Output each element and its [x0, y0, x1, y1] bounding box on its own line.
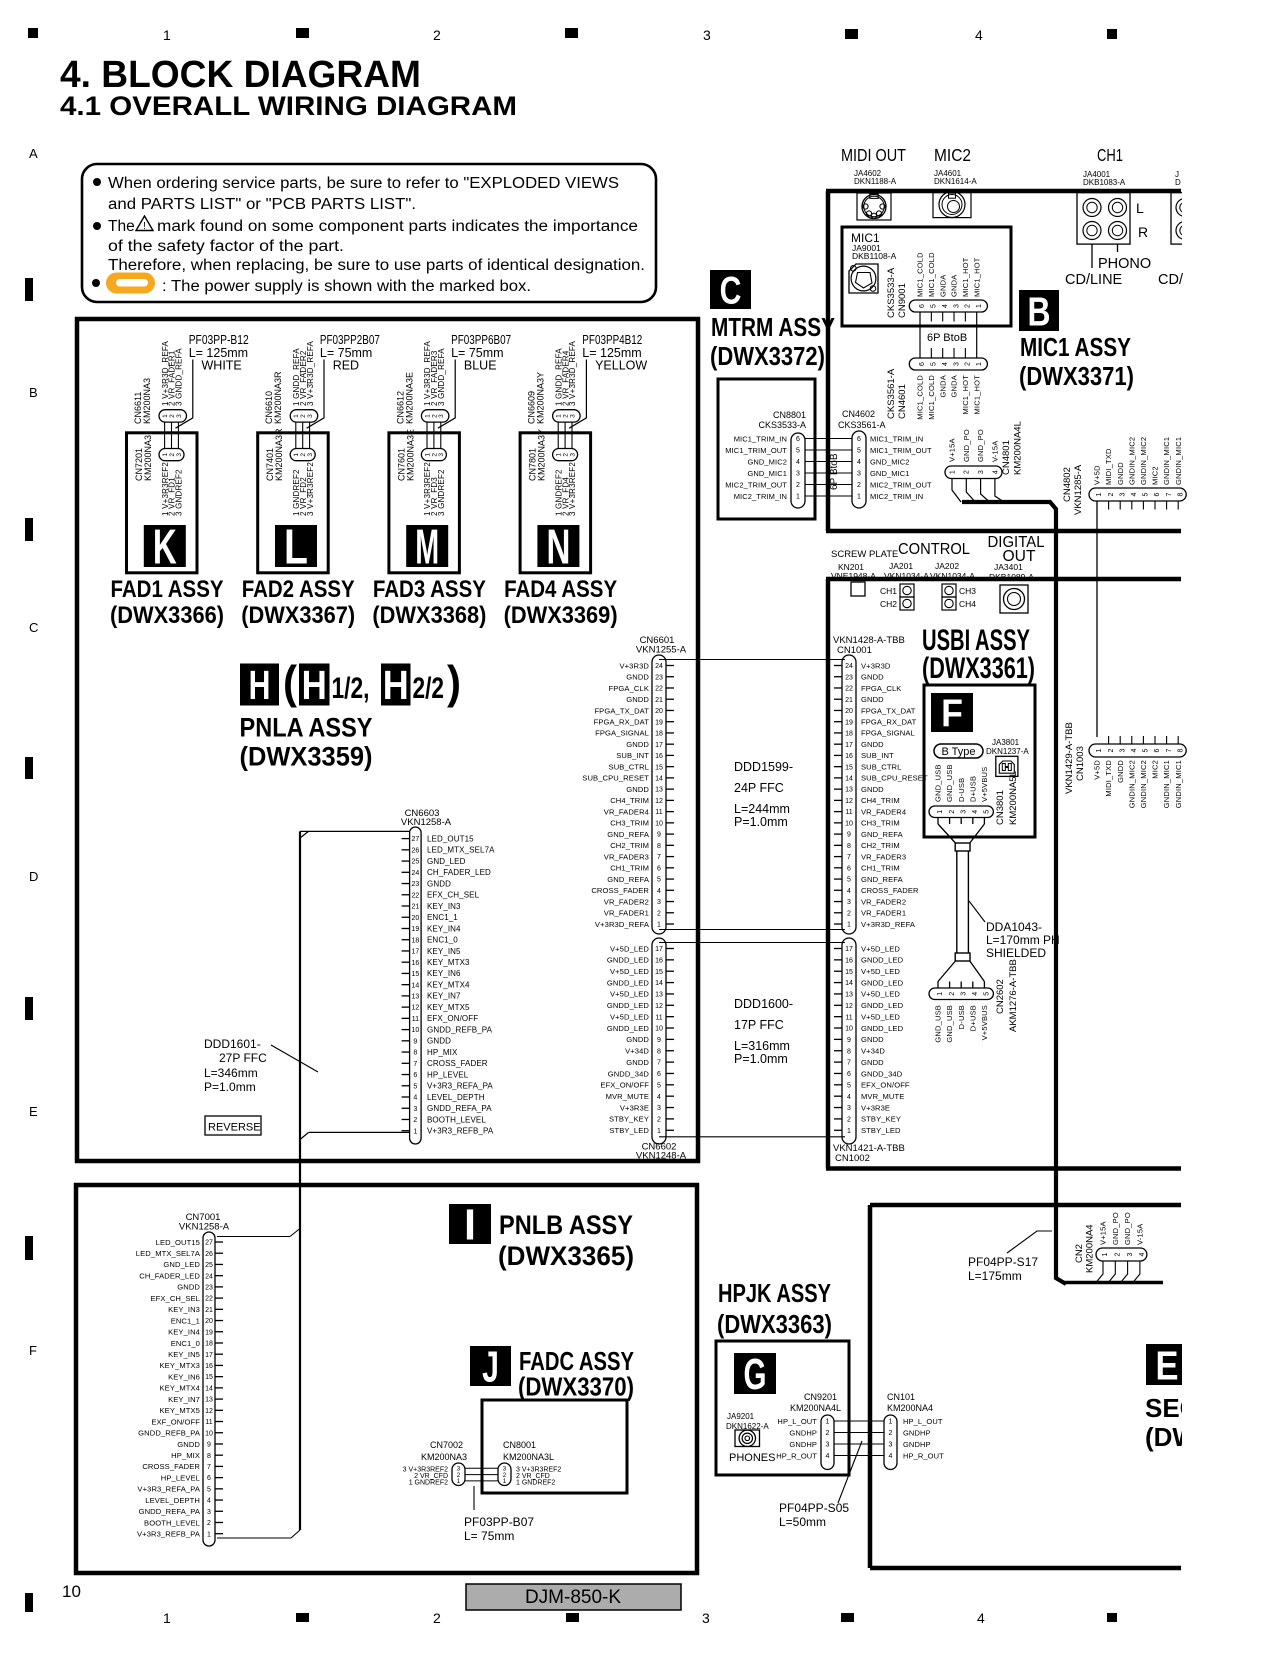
svg-text:3: 3	[657, 899, 661, 906]
svg-text:KM200NA3: KM200NA3	[143, 435, 153, 481]
svg-text:1: 1	[1096, 492, 1103, 496]
svg-text:1: 1	[657, 1128, 661, 1135]
svg-text:10: 10	[411, 1027, 419, 1034]
svg-text:GNDD_34D: GNDD_34D	[608, 1069, 650, 1078]
svg-text:2: 2	[965, 362, 972, 366]
svg-text:1: 1	[207, 1531, 211, 1538]
svg-text:N: N	[546, 521, 570, 575]
svg-text:VKN1255-A: VKN1255-A	[636, 645, 687, 656]
svg-text:L: L	[1136, 200, 1144, 216]
svg-text:1: 1	[857, 494, 861, 501]
svg-text:CROSS_FADER: CROSS_FADER	[427, 1059, 488, 1068]
svg-text:1: 1	[1096, 748, 1103, 752]
svg-text:(DW: (DW	[1145, 1422, 1197, 1452]
svg-text:CH_FADER_LED: CH_FADER_LED	[427, 868, 491, 877]
svg-text:3: 3	[953, 362, 960, 366]
svg-text:GND_LED: GND_LED	[163, 1260, 200, 1269]
svg-text:BOOTH_LEVEL: BOOTH_LEVEL	[144, 1518, 200, 1527]
svg-text:CH3_TRIM: CH3_TRIM	[861, 819, 900, 828]
svg-text:GNDIN_MIC1: GNDIN_MIC1	[1162, 760, 1171, 808]
svg-text:11: 11	[412, 1016, 419, 1023]
svg-text:MIC2: MIC2	[1151, 760, 1160, 779]
svg-text:(DWX3361): (DWX3361)	[922, 652, 1035, 685]
svg-text:5: 5	[207, 1486, 211, 1493]
svg-text:V+5D_LED: V+5D_LED	[610, 967, 649, 976]
svg-text:5: 5	[796, 448, 800, 455]
svg-text:CH4_TRIM: CH4_TRIM	[610, 796, 649, 805]
svg-text:1 GNDREF2: 1 GNDREF2	[516, 1480, 555, 1487]
svg-text:KEY_IN4: KEY_IN4	[168, 1328, 200, 1337]
svg-text:GNDIN_MIC1: GNDIN_MIC1	[1174, 437, 1183, 485]
svg-text:V+5D_LED: V+5D_LED	[610, 944, 649, 953]
svg-text:FAD3 ASSY: FAD3 ASSY	[373, 576, 486, 603]
svg-text:MIC2_TRIM_OUT: MIC2_TRIM_OUT	[725, 480, 787, 489]
svg-text:4: 4	[857, 459, 861, 466]
svg-text:STBY_LED: STBY_LED	[609, 1126, 649, 1135]
svg-text:SUB_CPU_RESET: SUB_CPU_RESET	[861, 774, 928, 783]
svg-text:27: 27	[205, 1240, 213, 1247]
svg-text:3: 3	[826, 1442, 830, 1449]
svg-text:CN3801: CN3801	[995, 790, 1006, 825]
svg-text:BOOTH_LEVEL: BOOTH_LEVEL	[427, 1115, 486, 1124]
svg-text:1: 1	[847, 922, 851, 929]
svg-text:GNDD: GNDD	[861, 695, 884, 704]
svg-text:GNDD: GNDD	[1116, 462, 1125, 485]
svg-text:RED: RED	[333, 359, 359, 373]
svg-text:V+5D_LED: V+5D_LED	[861, 944, 900, 953]
svg-text:GNDD_LED: GNDD_LED	[861, 1024, 904, 1033]
svg-text:PHONES: PHONES	[729, 1452, 775, 1464]
svg-text:of the safety factor of the pa: of the safety factor of the part.	[108, 238, 344, 255]
svg-text:3 V+3R3REF2: 3 V+3R3REF2	[306, 462, 315, 516]
svg-text:3: 3	[657, 1105, 661, 1112]
svg-text:1: 1	[163, 1610, 171, 1626]
svg-text:V+3R3_REFA_PA: V+3R3_REFA_PA	[137, 1485, 200, 1494]
svg-text:E: E	[1156, 1342, 1179, 1388]
svg-text:L=244mm: L=244mm	[734, 802, 790, 816]
svg-text:F: F	[29, 1343, 37, 1358]
svg-text:HP_MIX: HP_MIX	[171, 1451, 200, 1460]
svg-text:12: 12	[845, 798, 853, 805]
svg-text:1: 1	[976, 362, 983, 366]
svg-text:7: 7	[847, 1060, 851, 1067]
svg-text:V+5VBUS: V+5VBUS	[980, 767, 989, 802]
svg-text:20: 20	[655, 708, 663, 715]
svg-text:CH2_TRIM: CH2_TRIM	[861, 841, 900, 850]
svg-text:8: 8	[1177, 492, 1184, 496]
svg-text:GND_USB: GND_USB	[945, 764, 954, 802]
svg-text:VKN1258-A: VKN1258-A	[401, 817, 452, 828]
svg-text:KEY_MTX5: KEY_MTX5	[160, 1406, 200, 1415]
svg-text:6: 6	[1154, 492, 1161, 496]
svg-text:KM200NA3E: KM200NA3E	[404, 372, 414, 424]
svg-text:(DWX3371): (DWX3371)	[1019, 361, 1134, 391]
svg-text:3 V+3R3D_REFA: 3 V+3R3D_REFA	[306, 340, 315, 406]
svg-text:18: 18	[411, 937, 419, 944]
svg-text:6: 6	[796, 436, 800, 443]
svg-text:22: 22	[411, 892, 419, 899]
svg-text:12: 12	[655, 1003, 663, 1010]
svg-text:CN4801: CN4801	[1001, 440, 1012, 475]
svg-text:CN1003: CN1003	[1075, 746, 1086, 781]
svg-text:7: 7	[847, 854, 851, 861]
svg-text:KM200NA3R: KM200NA3R	[274, 428, 284, 481]
svg-text:V+5D_LED: V+5D_LED	[610, 1012, 649, 1021]
svg-text:GNDD: GNDD	[177, 1440, 200, 1449]
svg-text:LED_MTX_SEL7A: LED_MTX_SEL7A	[136, 1249, 201, 1258]
svg-text:LED_OUT15: LED_OUT15	[427, 834, 474, 843]
svg-text:C: C	[720, 270, 742, 313]
svg-text:V+3R3_REFB_PA: V+3R3_REFB_PA	[427, 1127, 494, 1136]
svg-text:CD/: CD/	[1158, 272, 1184, 288]
svg-text:1: 1	[657, 922, 661, 929]
svg-text:GNDA: GNDA	[950, 375, 959, 397]
svg-text:20: 20	[205, 1318, 213, 1325]
svg-text:(DWX3372): (DWX3372)	[710, 341, 825, 371]
svg-text:MIC1_COLD: MIC1_COLD	[916, 375, 925, 420]
svg-text:GNDD: GNDD	[861, 785, 884, 794]
svg-text:FPGA_CLK: FPGA_CLK	[609, 684, 649, 693]
svg-text:3: 3	[307, 414, 314, 418]
svg-text:KEY_IN5: KEY_IN5	[427, 947, 461, 956]
svg-text:GNDD: GNDD	[861, 1058, 884, 1067]
svg-text:17: 17	[845, 742, 853, 749]
svg-text:2: 2	[796, 482, 800, 489]
svg-text:24: 24	[205, 1273, 213, 1280]
svg-text:H: H	[249, 662, 271, 708]
svg-text:VKN1248-A: VKN1248-A	[636, 1151, 687, 1162]
svg-text:mark found on some component p: mark found on some component parts indic…	[157, 218, 638, 235]
svg-text:GNDHP: GNDHP	[789, 1440, 817, 1449]
svg-text:16: 16	[411, 960, 419, 967]
svg-text:15: 15	[845, 969, 853, 976]
svg-text:4: 4	[413, 1095, 417, 1102]
svg-text:CN9001: CN9001	[897, 283, 908, 318]
svg-text:3: 3	[438, 414, 445, 418]
svg-text:GNDD: GNDD	[861, 1035, 884, 1044]
svg-text:4: 4	[847, 888, 851, 895]
svg-text:16: 16	[655, 957, 663, 964]
svg-text:CONTROL: CONTROL	[898, 541, 970, 558]
svg-text:4: 4	[207, 1498, 211, 1505]
svg-text:5: 5	[984, 992, 991, 996]
svg-text:MIDI OUT: MIDI OUT	[841, 145, 906, 165]
svg-text:L=316mm: L=316mm	[734, 1039, 790, 1053]
svg-text:MTRM ASSY: MTRM ASSY	[711, 312, 835, 342]
svg-text:2: 2	[1115, 1252, 1122, 1256]
svg-text:CROSS_FADER: CROSS_FADER	[591, 886, 649, 895]
svg-text:(DWX3368): (DWX3368)	[372, 602, 486, 629]
svg-text:AKM1276-A-TBB: AKM1276-A-TBB	[1008, 959, 1019, 1032]
svg-text:2: 2	[826, 1430, 830, 1437]
svg-text:DDD1599-: DDD1599-	[734, 760, 793, 774]
svg-text:GNDD_REFB_PA: GNDD_REFB_PA	[427, 1025, 493, 1034]
svg-text:11: 11	[655, 1014, 662, 1021]
svg-text:GNDD: GNDD	[626, 673, 649, 682]
svg-text:6: 6	[847, 1071, 851, 1078]
svg-text:7: 7	[207, 1464, 211, 1471]
svg-text:FAD2 ASSY: FAD2 ASSY	[242, 576, 355, 603]
svg-text:PNLA ASSY: PNLA ASSY	[240, 713, 373, 743]
svg-text:6: 6	[857, 436, 861, 443]
svg-text:2: 2	[857, 482, 861, 489]
svg-text:17: 17	[845, 946, 853, 953]
svg-text:PHONO: PHONO	[1098, 256, 1151, 272]
svg-text:GND_PO: GND_PO	[962, 429, 971, 462]
svg-text:14: 14	[845, 776, 853, 783]
svg-text:HP_L_OUT: HP_L_OUT	[903, 1417, 943, 1426]
svg-text:MIC2: MIC2	[1151, 466, 1160, 485]
svg-text:SEC: SEC	[1145, 1393, 1199, 1423]
svg-text:A: A	[29, 146, 38, 161]
svg-text:KM200NA4: KM200NA4	[887, 1403, 933, 1413]
svg-text:2: 2	[889, 1430, 893, 1437]
svg-text:GNDA: GNDA	[950, 275, 959, 297]
svg-text:4: 4	[992, 470, 999, 474]
svg-text:(: (	[283, 656, 298, 708]
svg-text:FPGA_TX_DAT: FPGA_TX_DAT	[594, 706, 649, 715]
svg-text:14: 14	[845, 980, 853, 987]
svg-text:17: 17	[411, 949, 419, 956]
svg-text:3: 3	[176, 414, 183, 418]
svg-text:3 V+3R3D_REFA: 3 V+3R3D_REFA	[568, 340, 577, 406]
svg-text:26: 26	[411, 847, 419, 854]
svg-text:1: 1	[457, 1478, 461, 1485]
svg-text:KM200NA3: KM200NA3	[421, 1452, 467, 1462]
svg-text:16: 16	[205, 1363, 213, 1370]
svg-text:H: H	[302, 662, 327, 708]
svg-text:JA3401: JA3401	[994, 562, 1023, 572]
svg-text:3: 3	[307, 453, 314, 457]
svg-text:5: 5	[1143, 492, 1150, 496]
svg-text:(DWX3363): (DWX3363)	[717, 1309, 832, 1339]
svg-text:6P BtoB: 6P BtoB	[927, 332, 967, 344]
svg-text:1: 1	[796, 494, 800, 501]
svg-text:HP_R_OUT: HP_R_OUT	[903, 1451, 944, 1460]
svg-text:6: 6	[413, 1072, 417, 1079]
svg-text:GNDIN_MIC1: GNDIN_MIC1	[1162, 437, 1171, 485]
svg-text:H: H	[383, 662, 409, 708]
svg-text:3: 3	[702, 1610, 710, 1626]
svg-text:13: 13	[655, 787, 663, 794]
svg-text:STBY_KEY: STBY_KEY	[861, 1115, 901, 1124]
svg-text:L=170mm PH: L=170mm PH	[986, 933, 1060, 947]
svg-text:GNDD_LED: GNDD_LED	[607, 1001, 650, 1010]
svg-text:3: 3	[889, 1442, 893, 1449]
svg-text:13: 13	[845, 787, 853, 794]
svg-text:GNDD_REFB_PA: GNDD_REFB_PA	[138, 1429, 201, 1438]
svg-text:BLUE: BLUE	[464, 359, 497, 373]
svg-text:8: 8	[657, 843, 661, 850]
svg-text:KM200NA3E: KM200NA3E	[405, 429, 415, 481]
svg-text:V+5D_LED: V+5D_LED	[861, 990, 900, 999]
svg-text:Therefore, when replacing, be: Therefore, when replacing, be sure to us…	[108, 257, 645, 274]
svg-text:FPGA_TX_DAT: FPGA_TX_DAT	[861, 706, 916, 715]
svg-text:19: 19	[205, 1329, 213, 1336]
svg-text:MIC2_TRIM_IN: MIC2_TRIM_IN	[734, 492, 787, 501]
svg-text:When ordering service parts, b: When ordering service parts, be sure to …	[108, 175, 619, 192]
svg-text:CN2602: CN2602	[995, 979, 1006, 1014]
svg-text:DDA1043-: DDA1043-	[986, 920, 1042, 934]
svg-text:2: 2	[433, 1610, 441, 1626]
svg-text:GNDD_REFA_PA: GNDD_REFA_PA	[427, 1104, 492, 1113]
svg-text:18: 18	[205, 1341, 213, 1348]
svg-text:24P FFC: 24P FFC	[734, 781, 784, 795]
svg-text:4: 4	[889, 1453, 893, 1460]
svg-text:FPGA_SIGNAL: FPGA_SIGNAL	[595, 729, 649, 738]
svg-text:21: 21	[845, 697, 853, 704]
svg-text:LED_OUT15: LED_OUT15	[156, 1238, 200, 1247]
svg-text:FPGA_RX_DAT: FPGA_RX_DAT	[594, 718, 650, 727]
svg-text:5: 5	[931, 304, 938, 308]
svg-text:V+34D: V+34D	[625, 1047, 649, 1056]
svg-text:CH3_TRIM: CH3_TRIM	[610, 819, 649, 828]
svg-text:3: 3	[1119, 748, 1126, 752]
svg-text:KM200NA4: KM200NA4	[1085, 1224, 1096, 1273]
svg-text:V+3R3_REFB_PA: V+3R3_REFB_PA	[137, 1530, 201, 1539]
svg-text:3: 3	[438, 453, 445, 457]
svg-text:2: 2	[847, 1117, 851, 1124]
svg-text:GND_PO: GND_PO	[1123, 1212, 1132, 1245]
svg-text:27: 27	[411, 836, 419, 843]
svg-text:12: 12	[205, 1408, 213, 1415]
svg-text:1: 1	[1102, 1252, 1109, 1256]
svg-text:8: 8	[413, 1050, 417, 1057]
svg-text:V+15A: V+15A	[1099, 1221, 1108, 1245]
svg-text:MIC1_COLD: MIC1_COLD	[927, 375, 936, 420]
svg-text:GNDIN_MIC2: GNDIN_MIC2	[1127, 437, 1136, 485]
svg-text:PNLB ASSY: PNLB ASSY	[499, 1210, 633, 1240]
svg-text:2: 2	[433, 27, 441, 43]
svg-text:FPGA_RX_DAT: FPGA_RX_DAT	[861, 718, 917, 727]
svg-text:1: 1	[503, 1478, 507, 1485]
svg-text:VR_FADER1: VR_FADER1	[861, 909, 906, 918]
svg-text:6: 6	[919, 362, 926, 366]
svg-text:KEY_IN3: KEY_IN3	[168, 1305, 200, 1314]
svg-text:1: 1	[937, 992, 944, 996]
svg-text:MIC1 ASSY: MIC1 ASSY	[1020, 332, 1131, 362]
svg-text:DKB1108-A: DKB1108-A	[852, 251, 897, 261]
svg-text:CN4602: CN4602	[842, 409, 875, 419]
svg-text:PF03PP-B07: PF03PP-B07	[464, 1515, 534, 1529]
svg-text:1: 1	[163, 27, 171, 43]
svg-text:10: 10	[655, 820, 663, 827]
svg-text:2: 2	[1108, 492, 1115, 496]
svg-text:3: 3	[1127, 1252, 1134, 1256]
svg-text:CN101: CN101	[887, 1392, 915, 1402]
svg-text:GND_MIC1: GND_MIC1	[870, 469, 910, 478]
svg-text:2: 2	[413, 1117, 417, 1124]
svg-text:4.1 OVERALL WIRING DIAGRAM: 4.1 OVERALL WIRING DIAGRAM	[60, 91, 517, 121]
svg-text:KEY_IN4: KEY_IN4	[427, 924, 461, 933]
svg-text:VR_FADER2: VR_FADER2	[604, 897, 649, 906]
svg-text:22: 22	[845, 686, 853, 693]
svg-text:GNDD: GNDD	[427, 1037, 451, 1046]
svg-text:7: 7	[657, 854, 661, 861]
svg-text:GNDD: GNDD	[626, 1058, 649, 1067]
svg-text:11: 11	[655, 809, 662, 816]
svg-text:19: 19	[845, 719, 853, 726]
svg-text:MIC1_HOT: MIC1_HOT	[972, 375, 981, 415]
svg-text:CH2: CH2	[880, 599, 897, 609]
svg-text:CROSS_FADER: CROSS_FADER	[861, 886, 919, 895]
svg-text:5: 5	[857, 448, 861, 455]
svg-text:2: 2	[964, 470, 971, 474]
svg-text:8: 8	[207, 1453, 211, 1460]
svg-text:GNDD: GNDD	[626, 740, 649, 749]
svg-text:22: 22	[205, 1296, 213, 1303]
svg-text:12: 12	[845, 1003, 853, 1010]
svg-text:24: 24	[655, 663, 663, 670]
svg-text:CN8801: CN8801	[773, 410, 806, 420]
svg-text:13: 13	[845, 992, 853, 999]
svg-text:GNDD_LED: GNDD_LED	[861, 1001, 904, 1010]
svg-text:PF03PP2B07: PF03PP2B07	[320, 333, 380, 347]
svg-text:3: 3	[569, 414, 576, 418]
svg-text:L=346mm: L=346mm	[204, 1066, 258, 1080]
svg-text:V-15A: V-15A	[991, 441, 1000, 462]
svg-text:(DWX3359): (DWX3359)	[240, 742, 373, 772]
svg-text:GNDD_LED: GNDD_LED	[607, 1024, 650, 1033]
svg-text:MIC2_TRIM_OUT: MIC2_TRIM_OUT	[870, 480, 932, 489]
svg-text:7: 7	[657, 1060, 661, 1067]
svg-text:24: 24	[845, 663, 853, 670]
svg-text:KEY_IN6: KEY_IN6	[427, 969, 461, 978]
svg-text:GNDD_34D: GNDD_34D	[861, 1069, 903, 1078]
svg-text:DDD1600-: DDD1600-	[734, 997, 793, 1011]
svg-text:23: 23	[411, 881, 419, 888]
svg-text:CH4_TRIM: CH4_TRIM	[861, 796, 900, 805]
svg-text:SUB_CTRL: SUB_CTRL	[609, 762, 649, 771]
svg-text:LEVEL_DEPTH: LEVEL_DEPTH	[145, 1496, 200, 1505]
svg-text:GNDD_LED: GNDD_LED	[861, 978, 904, 987]
svg-text:GNDHP: GNDHP	[903, 1428, 931, 1437]
svg-text:7: 7	[1166, 748, 1173, 752]
svg-text:17: 17	[205, 1352, 213, 1359]
svg-text:9: 9	[847, 832, 851, 839]
svg-text:EFX_ON/OFF: EFX_ON/OFF	[427, 1014, 478, 1023]
svg-text:14: 14	[655, 776, 663, 783]
svg-text:SUB_CTRL: SUB_CTRL	[861, 762, 901, 771]
svg-text:6: 6	[847, 865, 851, 872]
svg-text:1: 1	[937, 810, 944, 814]
svg-text:GNDD: GNDD	[177, 1283, 200, 1292]
svg-text:11: 11	[845, 809, 852, 816]
svg-text:8: 8	[847, 843, 851, 850]
svg-text:ENC1_0: ENC1_0	[427, 936, 458, 945]
svg-text:GNDIN_MIC1: GNDIN_MIC1	[1174, 760, 1183, 808]
svg-text:6: 6	[657, 1071, 661, 1078]
svg-text:KEY_IN3: KEY_IN3	[427, 902, 461, 911]
svg-text:V+15A: V+15A	[948, 438, 957, 462]
svg-text:KEY_MTX4: KEY_MTX4	[160, 1384, 200, 1393]
svg-text:3: 3	[960, 810, 967, 814]
svg-text:21: 21	[205, 1307, 213, 1314]
svg-text:V+5VBUS: V+5VBUS	[980, 1005, 989, 1040]
svg-text:2: 2	[1108, 748, 1115, 752]
svg-text:3: 3	[569, 453, 576, 457]
svg-text:GNDD: GNDD	[626, 1035, 649, 1044]
svg-text:GND_USB: GND_USB	[945, 1005, 954, 1043]
svg-text:CKS3533-A: CKS3533-A	[886, 267, 897, 318]
svg-text:2: 2	[207, 1520, 211, 1527]
svg-text:GNDD_LED: GNDD_LED	[607, 956, 650, 965]
svg-text:23: 23	[655, 674, 663, 681]
svg-text:1: 1	[826, 1419, 830, 1426]
svg-text:GND_REFA: GND_REFA	[861, 830, 904, 839]
svg-text:KEY_MTX5: KEY_MTX5	[427, 1003, 470, 1012]
svg-text:CN9201: CN9201	[804, 1392, 837, 1402]
